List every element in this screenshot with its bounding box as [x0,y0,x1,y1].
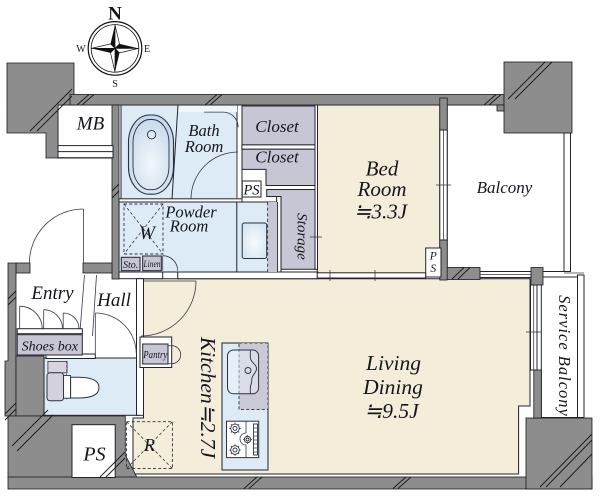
svg-text:E: E [144,44,150,55]
svg-text:Storage: Storage [293,213,309,260]
svg-text:R: R [143,435,155,455]
svg-text:P: P [429,251,437,263]
svg-text:Hall: Hall [96,290,131,311]
svg-text:Dining: Dining [362,375,423,399]
svg-text:PS: PS [82,444,105,466]
svg-text:S: S [430,263,436,275]
svg-text:Service Balcony: Service Balcony [555,295,574,417]
svg-text:Kitchen≒2.7J: Kitchen≒2.7J [196,336,220,460]
svg-text:Shoes box: Shoes box [22,340,79,355]
svg-text:≒9.5J: ≒9.5J [364,399,420,423]
svg-text:Closet: Closet [255,148,300,167]
svg-text:≒3.3J: ≒3.3J [354,200,409,224]
svg-text:Balcony: Balcony [477,178,533,197]
svg-text:Room: Room [184,137,224,156]
svg-text:Entry: Entry [30,283,74,304]
svg-text:PS: PS [242,183,260,199]
svg-text:Linen: Linen [143,260,161,270]
svg-text:N: N [108,4,122,25]
svg-text:W: W [76,44,86,55]
svg-text:Sto.: Sto. [123,260,138,271]
svg-text:Pantry: Pantry [142,350,167,361]
svg-text:S: S [112,79,118,90]
svg-text:Room: Room [169,217,209,236]
svg-text:Living: Living [365,351,421,375]
svg-text:Room: Room [357,177,407,201]
svg-text:Closet: Closet [255,117,300,136]
svg-text:MB: MB [76,114,105,135]
svg-text:W: W [139,223,157,244]
